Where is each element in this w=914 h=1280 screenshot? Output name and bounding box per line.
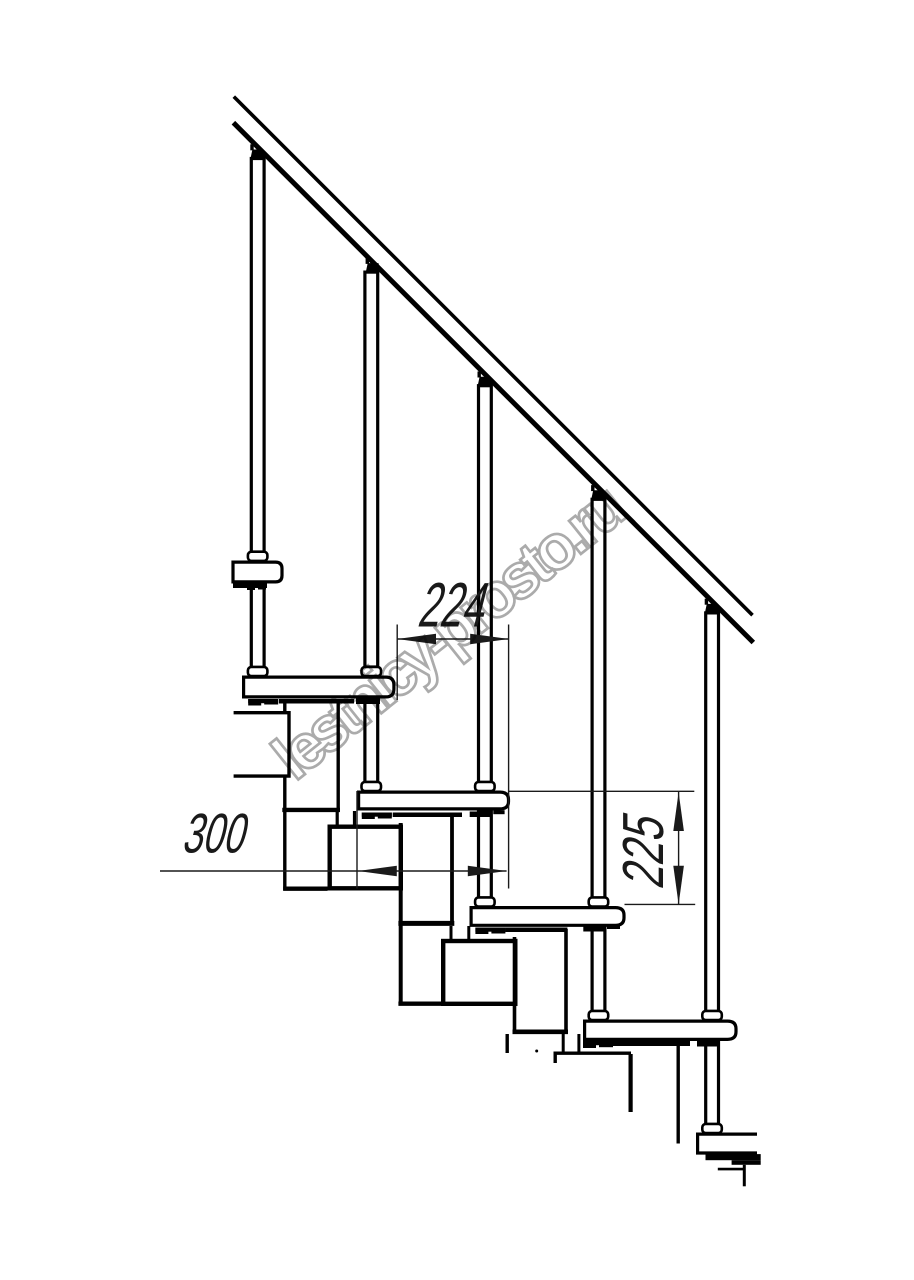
svg-text:225: 225 xyxy=(610,806,675,893)
svg-text:lestnicy-prosto.ru: lestnicy-prosto.ru xyxy=(260,472,637,793)
svg-text:300: 300 xyxy=(178,803,256,865)
